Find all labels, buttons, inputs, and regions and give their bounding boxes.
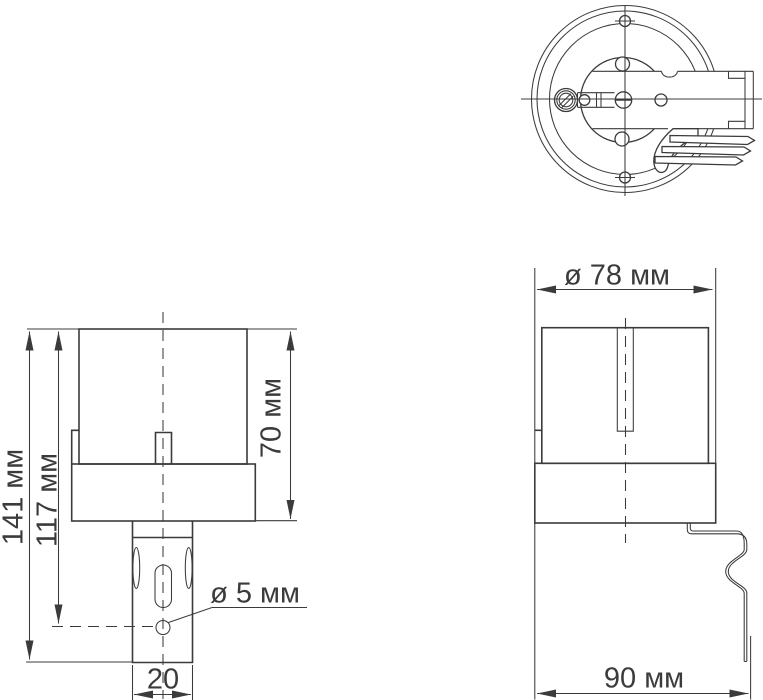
label-total-height: 141 мм <box>0 449 30 545</box>
label-stem-width: 20 <box>147 664 179 696</box>
drawing-canvas: 141 мм 117 мм 70 мм ø 5 мм 20 ø 78 мм 90… <box>0 0 763 700</box>
label-mount-hole-height: 117 мм <box>32 453 64 547</box>
wire-2 <box>662 147 751 156</box>
front-body-step <box>72 430 79 464</box>
label-diameter: ø 78 мм <box>564 260 670 292</box>
mount-clip-outer <box>687 523 747 662</box>
label-depth: 90 мм <box>604 663 684 695</box>
top-view <box>521 5 762 196</box>
mount-clip-inner <box>690 523 744 662</box>
adjust-screw-outer <box>555 89 578 112</box>
plate-pin-circle <box>655 94 667 106</box>
front-stem-slot-left <box>133 548 140 589</box>
front-stem-slot-right <box>185 548 192 589</box>
plate-hole-bottom <box>615 132 629 146</box>
plate-hole-top <box>616 57 630 71</box>
label-hole-diameter: ø 5 мм <box>210 578 300 610</box>
leader-hole-diameter <box>169 608 308 623</box>
wire-3 <box>655 157 743 166</box>
barrel-pivot-circle <box>579 95 590 106</box>
label-body-height: 70 мм <box>256 378 288 458</box>
side-view: ø 78 мм 90 мм <box>535 260 751 700</box>
technical-drawing-svg: 141 мм 117 мм 70 мм ø 5 мм 20 ø 78 мм 90… <box>0 0 763 700</box>
front-view: 141 мм 117 мм 70 мм ø 5 мм 20 <box>0 312 307 700</box>
